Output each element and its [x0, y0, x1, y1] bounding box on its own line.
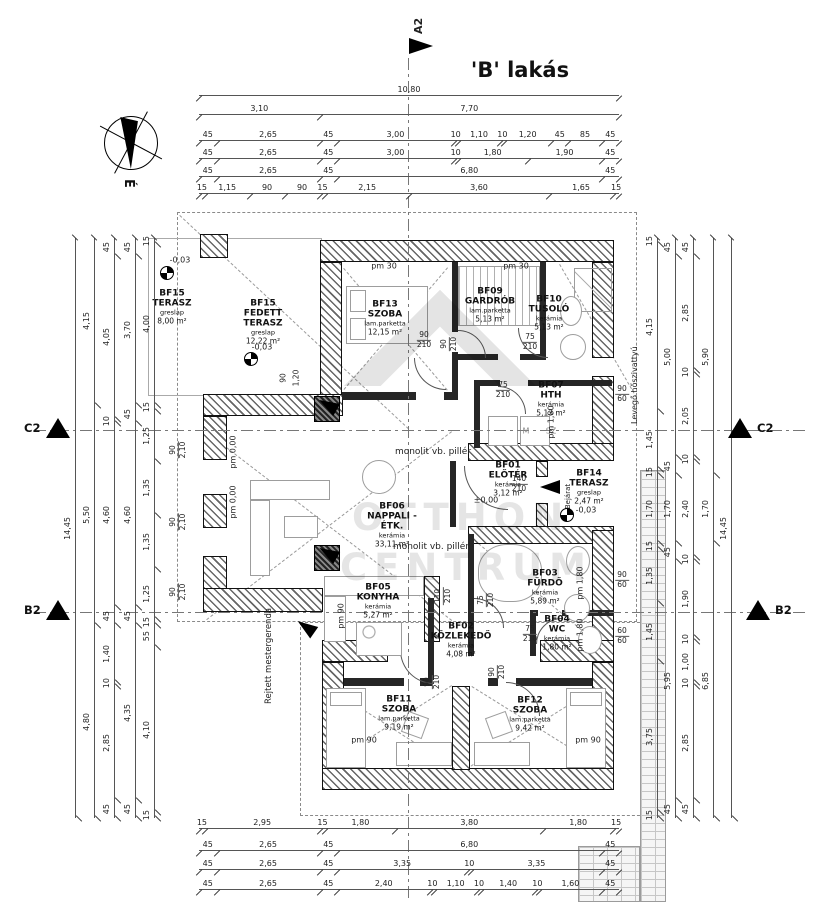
dim-segment: 45: [320, 837, 338, 850]
page-title: 'B' lakás: [471, 58, 569, 82]
dim-label: 90: [279, 373, 288, 383]
parapet-label: pm 30: [371, 262, 397, 271]
dim-segment: 3,10: [199, 101, 320, 114]
dim-segment: 1,25: [141, 569, 154, 619]
dim-chain-top-1: 10,80: [199, 82, 619, 96]
marker-c2-right-icon: [728, 418, 752, 438]
dim-segment: 2,65: [217, 127, 320, 140]
wall-segment: [203, 588, 323, 612]
window-size-label: 902,10: [169, 442, 187, 459]
neighbour-wall-brick: [578, 846, 640, 902]
dim-chain-top-2: 3,107,70: [199, 101, 619, 115]
dim-chain-right-4: 5,901,706,85: [700, 238, 714, 818]
dim-segment: 1,65: [549, 180, 613, 193]
dim-segment: 45: [602, 163, 620, 176]
room-label-bf15-fedett-terasz: BF15FEDETT TERASZ greslap12,22 m²: [231, 298, 295, 345]
dim-segment: 1,90: [680, 561, 693, 637]
marker-b2-right-label: B2: [775, 603, 792, 617]
window-size-label: 110210: [434, 587, 452, 605]
door-size-label: 140210: [510, 475, 528, 493]
dim-segment: 4,60: [122, 423, 135, 608]
wall-segment: [203, 556, 227, 590]
dim-segment: 2,65: [217, 145, 320, 158]
dim-segment: 45: [551, 127, 569, 140]
marker-a2-label: A2: [412, 6, 425, 34]
dim-segment: 5,50: [81, 405, 94, 626]
dim-chain-right-1: 154,151,45151,70151,351,453,7515: [644, 238, 658, 818]
level-benchmark-icon: [160, 266, 174, 280]
marker-c2-left-icon: [46, 418, 70, 438]
level-benchmark-icon: [244, 352, 258, 366]
dim-segment: 45: [320, 163, 338, 176]
dim-segment: 2,40: [337, 876, 430, 889]
dim-segment: 45: [662, 457, 675, 475]
level-label: ±0,00: [474, 496, 499, 505]
dim-segment: 2,40: [680, 461, 693, 557]
furniture-dining-table: [362, 460, 396, 494]
dim-chain-top-3: 452,65453,00101,10101,20458545: [199, 127, 619, 141]
room-label-bf01: BF01ELŐTÉR kerámia3,12 m²: [475, 460, 541, 497]
door-size-label: 75210: [477, 593, 495, 607]
annotation-monolith-pillar-2: monolit vb. pillér: [393, 542, 469, 552]
dim-segment: 45: [199, 837, 217, 850]
door-size-label: 75210: [523, 625, 537, 643]
dim-segment: 2,85: [680, 256, 693, 370]
compass: [102, 114, 160, 172]
dim-segment: 3,60: [409, 180, 549, 193]
dim-segment: 45: [602, 145, 620, 158]
dim-segment: 2,85: [101, 686, 114, 800]
furniture-desk: [396, 742, 452, 766]
dim-segment: 45: [101, 607, 114, 625]
door-size-label: 90210: [488, 665, 506, 679]
dim-segment: 45: [199, 163, 217, 176]
level-label: -0,03: [170, 256, 191, 265]
level-benchmark-icon: [560, 508, 574, 522]
dim-segment: 10,80: [199, 82, 619, 95]
window-size-label: 902,10: [169, 514, 187, 531]
annotation-monolith-pillar-1: monolit vb. pillér: [395, 447, 471, 457]
parapet-label: pm 0,00: [229, 485, 238, 518]
dim-segment: 4,35: [122, 625, 135, 800]
room-label-bf02: BF02KÖZLEKEDŐ kerámia4,08 m²: [418, 621, 504, 658]
dim-segment: 6,80: [337, 837, 601, 850]
parapet-label: pm 90: [351, 736, 377, 745]
dim-segment: 45: [602, 127, 620, 140]
dim-segment: 1,45: [644, 411, 657, 469]
dim-segment: 45: [199, 145, 217, 158]
dim-segment: 1,20: [504, 127, 551, 140]
room-label-bf11: BF11SZOBA lam.parketta9,19 m²: [356, 694, 442, 731]
dim-segment: 4,05: [101, 256, 114, 419]
north-label: É: [121, 179, 136, 188]
dim-segment: 5,95: [662, 561, 675, 800]
dim-segment: 2,65: [217, 856, 320, 869]
marker-c2-right-label: C2: [757, 421, 773, 435]
pad-size-label: 9060: [615, 385, 629, 403]
dim-segment: 3,00: [337, 127, 454, 140]
room-label-bf03: BF03FÜRDŐ kerámia5,89 m²: [515, 568, 575, 605]
dim-chain-bottom-4: 452,65452,40101,10101,40101,6045: [199, 876, 619, 890]
dim-segment: 4,15: [81, 238, 94, 405]
dim-segment: 3,80: [395, 815, 543, 828]
room-label-bf05: BF05KONYHA kerámia5,27 m²: [335, 582, 421, 619]
dim-segment: 1,70: [644, 475, 657, 543]
dim-segment: 45: [662, 238, 675, 256]
dim-segment: 1,80: [325, 815, 395, 828]
dim-segment: 45: [122, 405, 135, 423]
room-label-bf12: BF12SZOBA lam.parketta9,42 m²: [487, 695, 573, 732]
dim-segment: 2,95: [205, 815, 320, 828]
dim-segment: 1,70: [662, 475, 675, 543]
dim-segment: 15: [141, 812, 154, 818]
dim-segment: 7,70: [320, 101, 619, 114]
dim-chain-left-3: 454,05104,60451,40102,8545: [101, 238, 115, 818]
dim-segment: 45: [122, 800, 135, 818]
dim-segment: 45: [101, 800, 114, 818]
marker-a2-flag-icon: [409, 38, 433, 54]
dim-segment: 1,90: [528, 145, 602, 158]
marker-b2-right-icon: [746, 600, 770, 620]
dim-segment: 15: [613, 815, 619, 828]
dim-segment: 45: [320, 145, 338, 158]
interior-wall: [344, 678, 404, 686]
dim-segment: 4,15: [644, 244, 657, 411]
level-label: -0,03: [252, 343, 273, 352]
parapet-label: pm 1,80: [576, 566, 585, 599]
dim-segment: 3,35: [337, 856, 467, 869]
door-size-label: 75210: [496, 381, 510, 399]
dim-chain-bottom-2: 452,65456,8045: [199, 837, 619, 851]
dim-segment: 45: [320, 856, 338, 869]
dim-segment: 2,15: [325, 180, 409, 193]
dim-segment: 1,40: [481, 876, 535, 889]
pad-size-label: 9060: [615, 571, 629, 589]
furniture-sofa: [250, 480, 330, 500]
dim-chain-top-6: 151,159090152,153,601,6515: [199, 180, 619, 194]
dim-segment: 15: [613, 180, 619, 193]
door-size-label: 75210: [523, 333, 537, 351]
room-label-bf04: BF04WC kerámia1,80 m²: [534, 614, 580, 651]
dim-segment: 45: [602, 837, 620, 850]
marker-c2-left-label: C2: [24, 421, 40, 435]
dim-chain-top-4: 452,65453,00101,801,9045: [199, 145, 619, 159]
marker-b2-left-label: B2: [24, 603, 41, 617]
dim-segment: 90: [250, 180, 285, 193]
dim-segment: 2,05: [680, 374, 693, 456]
dim-segment: 4,60: [101, 423, 114, 608]
pad-size-label: 6060: [615, 627, 629, 645]
dim-segment: 3,00: [337, 145, 454, 158]
furniture-desk: [474, 742, 530, 766]
dim-segment: 5,90: [700, 238, 713, 475]
dim-segment: 6,85: [700, 543, 713, 818]
parapet-label: pm 0,00: [229, 435, 238, 468]
parapet-label: pm 90: [575, 736, 601, 745]
dim-chain-top-5: 452,65456,8045: [199, 163, 619, 177]
dim-segment: 1,80: [458, 145, 528, 158]
dim-segment: 1,40: [101, 625, 114, 681]
wall-segment: [203, 416, 227, 460]
parapet-label: pm 30: [503, 262, 529, 271]
room-label-bf13: BF13SZOBA lam.parketta12,15 m²: [342, 299, 428, 336]
dim-segment: 45: [602, 876, 620, 889]
dim-segment: 14,45: [62, 238, 75, 818]
dim-segment: 90: [285, 180, 320, 193]
floor-plan-canvas: OTTHON CENTRUM 'B' lakás É: [0, 0, 838, 902]
wall-segment: [452, 686, 470, 770]
dim-segment: 45: [680, 238, 693, 256]
dim-segment: 2,65: [217, 163, 320, 176]
dim-chain-right-3: 452,85102,05102,40101,90101,00102,8545: [680, 238, 694, 818]
dim-segment: 3,35: [471, 856, 601, 869]
parapet-label: pm 1,80: [547, 405, 556, 438]
annotation-hidden-beam: Rejtett mestergerenda: [264, 558, 274, 704]
dim-segment: 45: [320, 127, 338, 140]
door-size-label: 90210: [423, 675, 441, 689]
dim-segment: 1,35: [141, 515, 154, 569]
dim-chain-left-4: 453,70454,60454,3545: [122, 238, 136, 818]
wall-segment: [320, 262, 342, 410]
wall-pillar: [200, 234, 228, 258]
wall-segment: [322, 768, 614, 790]
dim-segment: 3,75: [644, 661, 657, 812]
dim-segment: 45: [680, 800, 693, 818]
dim-segment: 45: [662, 800, 675, 818]
dim-segment: 1,45: [644, 603, 657, 661]
wall-segment: [203, 494, 227, 528]
dim-segment: 1,60: [539, 876, 601, 889]
dim-segment: 2,65: [217, 837, 320, 850]
dim-segment: 1,10: [434, 876, 477, 889]
fixture-sink: [560, 334, 586, 360]
annotation-washer: M: [523, 427, 530, 436]
dim-label: 1,20: [292, 370, 301, 387]
dim-chain-right-5: 14,45: [718, 238, 732, 818]
dim-segment: 45: [122, 238, 135, 256]
dim-segment: 1,25: [141, 411, 154, 461]
dim-chain-left-1: 14,45: [62, 238, 76, 818]
window-size-label: 902,10: [169, 584, 187, 601]
door-size-label: 90210: [417, 331, 431, 349]
dim-segment: 1,10: [458, 127, 501, 140]
annotation-heat-pump: Levegő hőszivattyú: [630, 278, 639, 424]
dim-segment: 45: [662, 543, 675, 561]
dim-segment: 3,70: [122, 256, 135, 405]
dim-segment: 85: [568, 127, 601, 140]
interior-wall: [488, 678, 498, 686]
dim-segment: 1,00: [680, 641, 693, 681]
dim-segment: 55: [141, 625, 154, 647]
dim-segment: 1,80: [543, 815, 613, 828]
furniture-coffee-table: [284, 516, 318, 538]
dim-segment: 1,70: [700, 475, 713, 543]
parapet-label: pm 1,80: [576, 618, 585, 651]
dim-segment: 4,80: [81, 625, 94, 818]
dim-segment: 2,65: [217, 876, 320, 889]
dim-segment: 45: [199, 876, 217, 889]
dim-chain-bottom-1: 152,95151,803,801,8015: [199, 815, 619, 829]
door-size-label: 90210: [440, 337, 458, 351]
dim-segment: 45: [320, 876, 338, 889]
dim-segment: 45: [101, 238, 114, 256]
dim-segment: 45: [199, 127, 217, 140]
dim-segment: 1,15: [205, 180, 250, 193]
level-label: -0,03: [576, 506, 597, 515]
marker-b2-left-icon: [46, 600, 70, 620]
dim-segment: 45: [199, 856, 217, 869]
dim-segment: 14,45: [718, 238, 731, 818]
dim-segment: 6,80: [337, 163, 601, 176]
dim-segment: 15: [644, 812, 657, 818]
dim-chain-right-2: 455,00451,70455,9545: [662, 238, 676, 818]
dim-chain-bottom-3: 452,65453,35103,3545: [199, 856, 619, 870]
dim-segment: 1,35: [141, 461, 154, 515]
dim-chain-left-5: 154,00151,251,351,351,2515554,1015: [141, 238, 155, 818]
dim-segment: 1,35: [644, 549, 657, 603]
dim-chain-left-2: 4,155,504,80: [81, 238, 95, 818]
parapet-label: pm 90: [337, 603, 346, 629]
room-label-bf10: BF10TUSOLÓ kerámia5,13 m²: [519, 294, 579, 331]
dim-segment: 5,00: [662, 256, 675, 457]
kitchen-hob: [356, 622, 402, 656]
wall-segment: [320, 240, 614, 262]
dim-segment: 45: [122, 607, 135, 625]
dim-segment: 2,85: [680, 686, 693, 800]
dim-segment: 45: [602, 856, 620, 869]
dim-segment: 4,10: [141, 647, 154, 812]
dim-segment: 4,00: [141, 244, 154, 405]
interior-wall: [516, 678, 592, 686]
furniture-pillow: [570, 692, 602, 706]
entrance-arrow-icon: [540, 480, 560, 494]
